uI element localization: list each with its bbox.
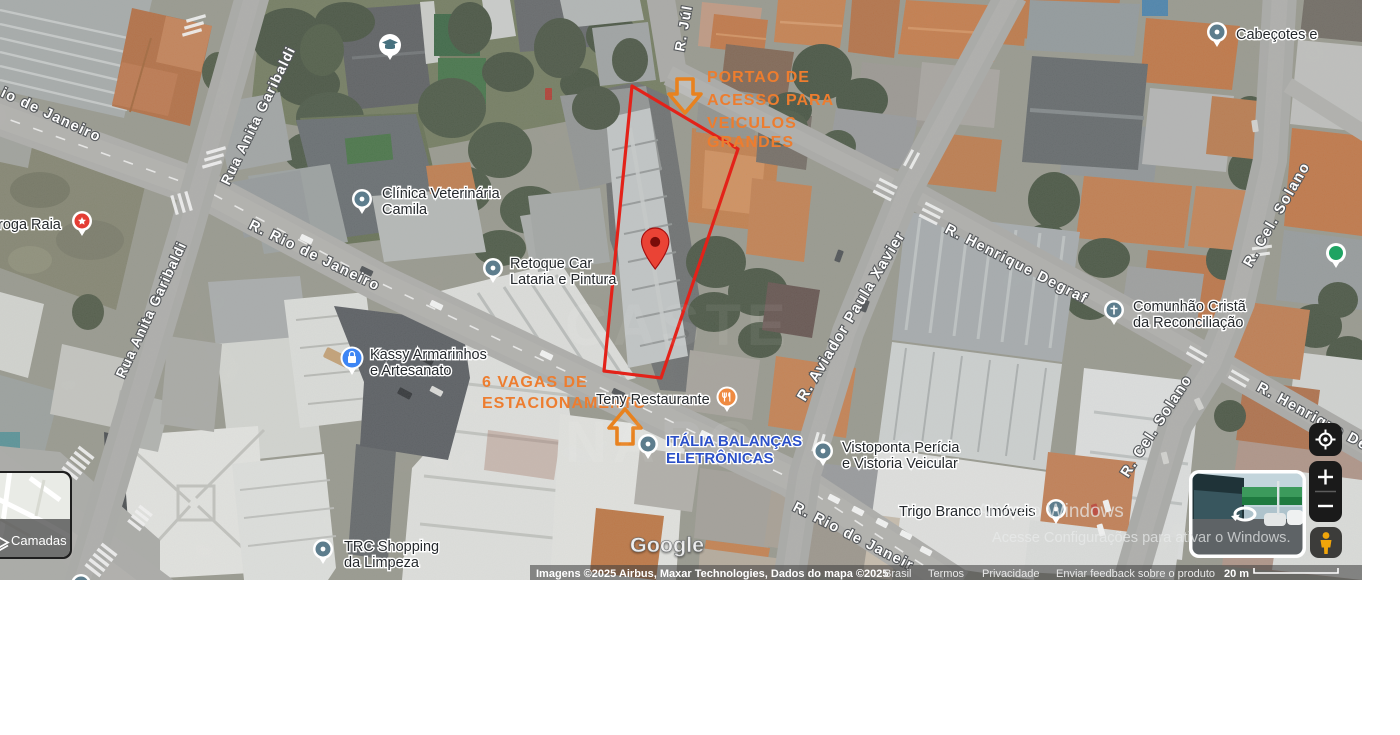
svg-text:6 VAGAS DE: 6 VAGAS DE: [482, 374, 588, 391]
svg-text:Ativar o Windows: Ativar o Windows: [977, 501, 1124, 522]
svg-text:Teny Restaurante: Teny Restaurante: [596, 392, 710, 408]
svg-text:PORTAO DE: PORTAO DE: [707, 69, 810, 86]
svg-text:e Artesanato: e Artesanato: [370, 363, 451, 379]
svg-text:Kassy Armarinhos: Kassy Armarinhos: [370, 347, 487, 363]
svg-text:20 m: 20 m: [1224, 568, 1249, 580]
svg-text:Privacidade: Privacidade: [982, 568, 1039, 580]
svg-text:ELETRÔNICAS: ELETRÔNICAS: [666, 449, 774, 467]
svg-text:Cabeçotes e: Cabeçotes e: [1236, 27, 1317, 43]
svg-text:e Vistoria Veicular: e Vistoria Veicular: [842, 456, 958, 472]
svg-text:ACESSO PARA: ACESSO PARA: [707, 92, 834, 109]
svg-text:roga Raia: roga Raia: [0, 217, 62, 233]
svg-text:Camadas: Camadas: [11, 533, 67, 548]
svg-text:Vistoponta Perícia: Vistoponta Perícia: [842, 440, 960, 456]
svg-text:ITÁLIA BALANÇAS: ITÁLIA BALANÇAS: [666, 433, 802, 450]
svg-text:Google: Google: [630, 533, 704, 557]
svg-text:Retoque Car: Retoque Car: [510, 256, 592, 272]
svg-text:Termos: Termos: [928, 568, 965, 580]
svg-text:Acesse Configurações para ativ: Acesse Configurações para ativar o Windo…: [992, 530, 1291, 546]
svg-text:VEICULOS: VEICULOS: [707, 115, 797, 132]
svg-text:Camila: Camila: [382, 202, 428, 218]
svg-text:da Limpeza: da Limpeza: [344, 555, 420, 571]
svg-text:Imagens ©2025 Airbus, Maxar Te: Imagens ©2025 Airbus, Maxar Technologies…: [536, 568, 888, 580]
svg-text:TRC Shopping: TRC Shopping: [344, 539, 439, 555]
svg-text:da Reconciliação: da Reconciliação: [1133, 315, 1243, 331]
svg-text:CASTE: CASTE: [565, 293, 792, 358]
svg-text:Clínica Veterinária: Clínica Veterinária: [382, 186, 501, 202]
svg-text:Lataria e Pintura: Lataria e Pintura: [510, 272, 617, 288]
svg-text:Brasil: Brasil: [884, 568, 912, 580]
svg-text:Comunhão Cristã: Comunhão Cristã: [1133, 299, 1247, 315]
svg-text:GRANDES: GRANDES: [707, 134, 794, 151]
svg-text:Enviar feedback sobre o produt: Enviar feedback sobre o produto: [1056, 568, 1215, 580]
